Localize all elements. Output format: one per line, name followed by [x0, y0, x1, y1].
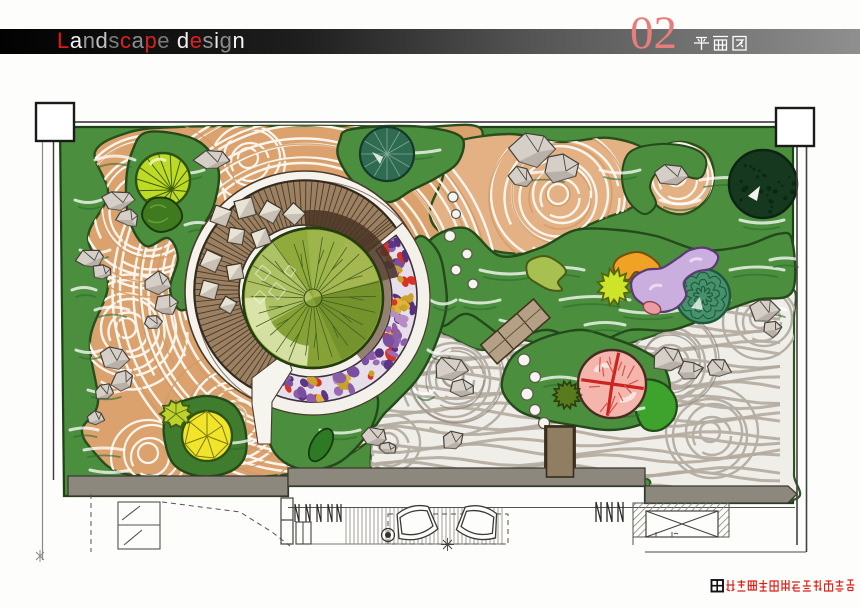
- svg-text:02: 02: [630, 7, 677, 59]
- svg-text:Landscape design: Landscape design: [57, 28, 245, 53]
